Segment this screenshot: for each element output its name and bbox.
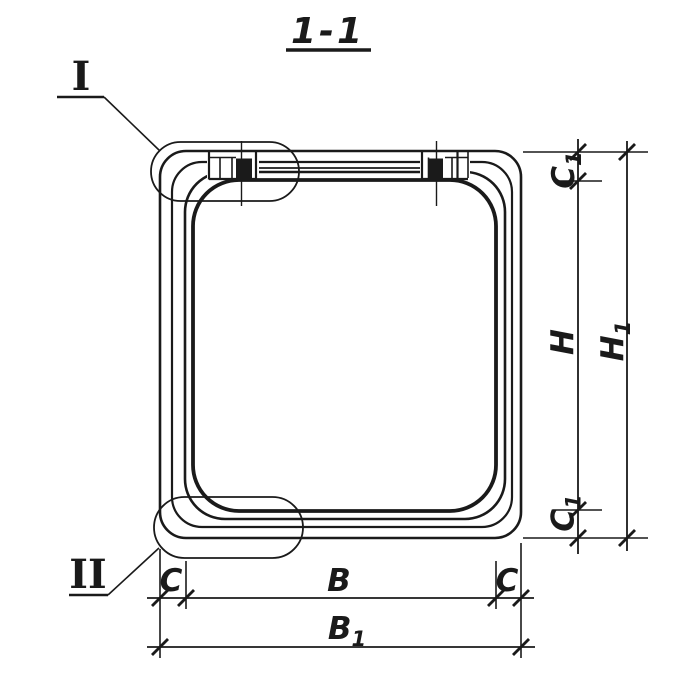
dim-text: H <box>545 329 581 355</box>
section-title: 1-1 <box>291 11 365 52</box>
dim-subscript: 1 <box>562 151 586 166</box>
dim-label-h1: H1 <box>595 321 635 362</box>
dim-subscript: 1 <box>352 627 367 651</box>
detail-2-label: II <box>69 551 106 598</box>
dim-subscript: 1 <box>611 321 635 336</box>
inner-contour <box>193 180 496 511</box>
right-dimensions: C1 H C1 H1 <box>523 139 648 554</box>
dim-text: C <box>160 563 183 599</box>
drawing-sheet: 1-1 I <box>0 0 700 700</box>
dim-text: C <box>546 166 582 189</box>
callout-detail-1: I <box>57 53 160 151</box>
wall-contour-2 <box>172 162 512 527</box>
wall-contour-3 <box>185 172 505 519</box>
callout-detail-2: II <box>69 548 159 598</box>
outer-contour <box>160 151 521 538</box>
detail-1-label: I <box>72 53 91 100</box>
dim-label-c1-bottom: C1 <box>546 494 586 531</box>
dim-label-c1-top: C1 <box>546 151 586 188</box>
bottom-dimensions: C B C B1 <box>147 543 535 658</box>
section-outline <box>160 151 521 538</box>
dim-text: C <box>546 509 582 532</box>
detail-2-leader-line <box>108 548 159 595</box>
detail-1-leader-line <box>104 97 160 151</box>
dim-text: C <box>496 563 519 599</box>
dim-text: H <box>595 335 631 361</box>
dim-label-c-left: C <box>160 563 183 599</box>
dim-subscript: 1 <box>562 494 586 509</box>
dim-text: B <box>328 611 352 647</box>
dim-label-c-right: C <box>496 563 519 599</box>
dim-label-h: H <box>545 329 581 355</box>
dim-text: B <box>327 563 351 599</box>
section-drawing: 1-1 I <box>0 0 700 700</box>
dim-label-b1: B1 <box>328 611 366 651</box>
embedded-plate <box>236 159 252 179</box>
dim-label-b: B <box>327 563 351 599</box>
